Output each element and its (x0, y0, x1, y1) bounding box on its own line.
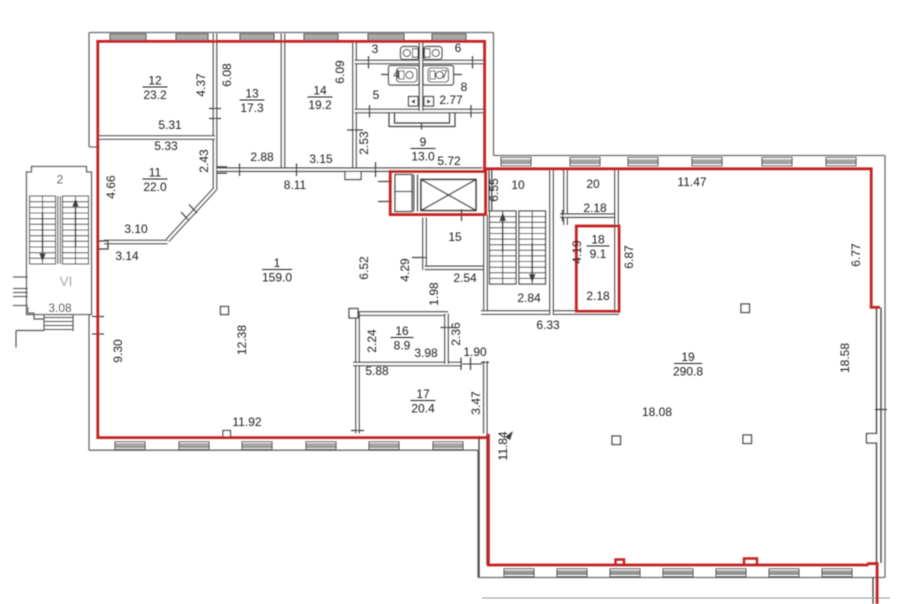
svg-text:2.18: 2.18 (586, 289, 610, 303)
svg-text:3.10: 3.10 (124, 222, 148, 236)
svg-text:14: 14 (313, 84, 327, 98)
svg-text:3.15: 3.15 (309, 152, 333, 166)
svg-text:5.31: 5.31 (158, 118, 182, 132)
svg-text:6.55: 6.55 (487, 178, 501, 202)
svg-text:18: 18 (591, 233, 605, 247)
svg-text:9.30: 9.30 (111, 339, 125, 363)
svg-text:3.98: 3.98 (414, 346, 438, 360)
svg-text:2.18: 2.18 (583, 201, 607, 215)
svg-text:2.36: 2.36 (449, 322, 463, 346)
svg-text:2.88: 2.88 (250, 150, 274, 164)
svg-text:5: 5 (373, 88, 380, 102)
svg-text:6.33: 6.33 (536, 318, 560, 332)
svg-text:3: 3 (372, 42, 379, 56)
svg-text:1.90: 1.90 (463, 345, 487, 359)
svg-text:6: 6 (455, 41, 462, 55)
svg-text:22.0: 22.0 (143, 180, 167, 194)
svg-text:159.0: 159.0 (262, 271, 292, 285)
svg-text:2.24: 2.24 (365, 329, 379, 353)
svg-text:2.77: 2.77 (439, 93, 463, 107)
svg-text:3.08: 3.08 (48, 301, 72, 315)
svg-text:3.14: 3.14 (115, 249, 139, 263)
svg-text:6.52: 6.52 (357, 256, 371, 280)
svg-text:6.87: 6.87 (622, 245, 636, 269)
svg-text:12: 12 (148, 74, 162, 88)
svg-text:13: 13 (245, 87, 259, 101)
svg-text:18.08: 18.08 (642, 405, 672, 419)
svg-text:5.33: 5.33 (154, 139, 178, 153)
svg-text:6.08: 6.08 (220, 63, 234, 87)
svg-text:5.72: 5.72 (437, 154, 461, 168)
svg-text:290.8: 290.8 (673, 365, 703, 379)
svg-text:8: 8 (461, 80, 468, 94)
svg-text:12.38: 12.38 (235, 325, 249, 355)
svg-text:7: 7 (441, 68, 448, 82)
svg-text:18.58: 18.58 (838, 343, 852, 373)
svg-text:8.11: 8.11 (284, 178, 307, 192)
svg-text:2.84: 2.84 (517, 291, 541, 305)
svg-text:4.29: 4.29 (398, 258, 412, 282)
svg-text:VI: VI (60, 274, 73, 289)
svg-text:23.2: 23.2 (143, 88, 167, 102)
svg-text:4.37: 4.37 (194, 73, 208, 97)
svg-text:3.47: 3.47 (469, 391, 483, 415)
svg-text:19: 19 (681, 350, 695, 364)
svg-text:2.43: 2.43 (197, 149, 211, 173)
svg-text:8.9: 8.9 (394, 339, 411, 353)
svg-text:20.4: 20.4 (411, 402, 435, 416)
svg-text:10: 10 (511, 178, 525, 192)
svg-text:11.47: 11.47 (677, 175, 706, 189)
svg-text:2.54: 2.54 (453, 271, 477, 285)
svg-text:4: 4 (393, 68, 400, 82)
svg-text:17: 17 (416, 387, 430, 401)
svg-text:9: 9 (420, 135, 427, 149)
svg-text:1: 1 (274, 256, 281, 270)
svg-text:11: 11 (149, 166, 162, 180)
svg-text:4.66: 4.66 (104, 175, 118, 199)
svg-text:6.09: 6.09 (333, 60, 347, 84)
svg-text:17.3: 17.3 (240, 101, 264, 115)
svg-text:2.53: 2.53 (357, 131, 371, 155)
svg-text:13.0: 13.0 (411, 150, 435, 164)
svg-text:4.19: 4.19 (570, 240, 584, 264)
svg-text:19.2: 19.2 (308, 98, 332, 112)
svg-text:6.77: 6.77 (849, 243, 863, 267)
svg-text:16: 16 (395, 324, 409, 338)
svg-text:15: 15 (448, 230, 462, 244)
svg-text:20: 20 (586, 177, 600, 191)
svg-text:2: 2 (57, 173, 64, 187)
svg-text:9.1: 9.1 (590, 247, 607, 261)
svg-text:5.88: 5.88 (365, 364, 389, 378)
svg-text:11.92: 11.92 (232, 415, 261, 429)
svg-text:1.98: 1.98 (427, 282, 441, 306)
